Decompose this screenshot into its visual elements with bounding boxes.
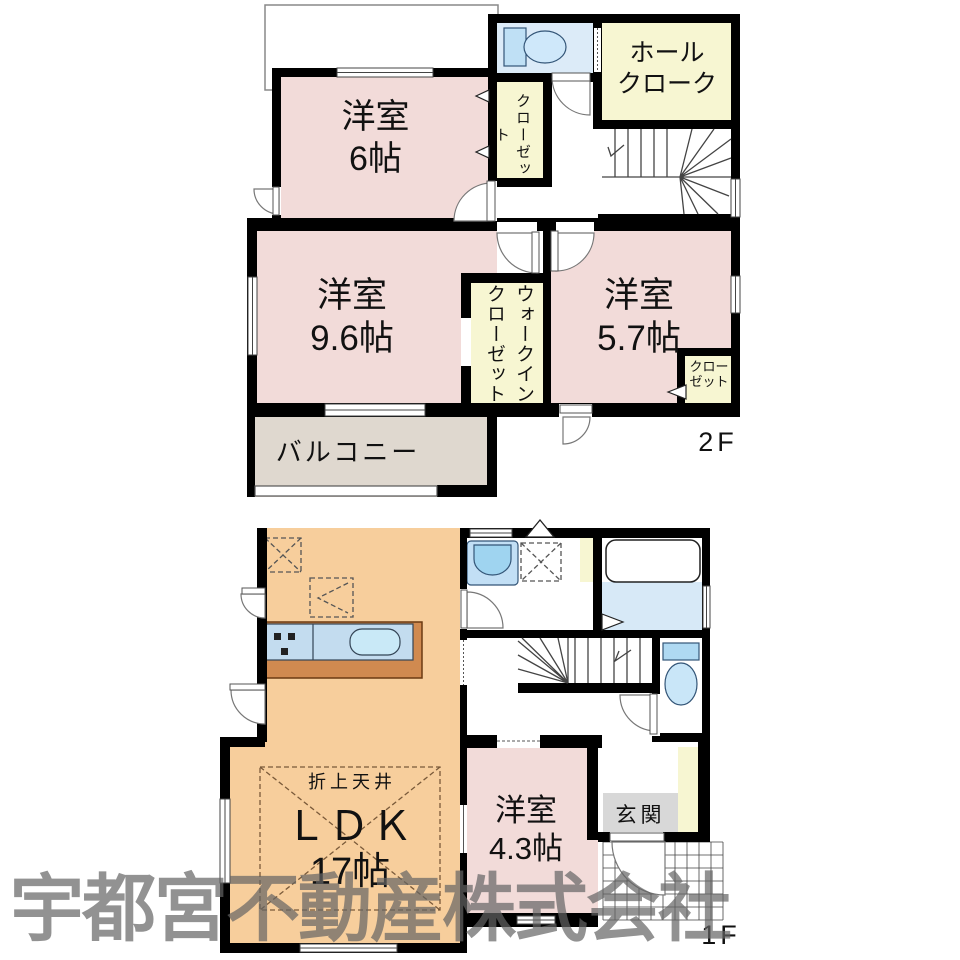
room-size: 9.6帖 (252, 317, 452, 360)
room-label-west57: 洋室 5.7帖 (548, 274, 730, 360)
toilet-icon (663, 643, 699, 660)
ceiling-note-label: 折上天井 (282, 768, 422, 794)
room-name: ＬＤＫ (257, 803, 443, 850)
room-name: 洋室 (252, 274, 452, 317)
floorplan: 洋室 6帖 クローゼット ホール クローク 洋室 9.6帖 ウォークイン クロー… (0, 0, 960, 960)
bathtub-icon (606, 540, 700, 582)
washer-space-icon (521, 543, 561, 581)
kitchen-sink-icon (350, 629, 400, 655)
room-label-west43: 洋室 4.3帖 (462, 792, 590, 868)
toilet-icon (504, 28, 526, 66)
hall-cloak-label: ホール クローク (603, 38, 731, 100)
room-name: 洋室 (462, 792, 590, 830)
room-label-west6: 洋室 6帖 (288, 96, 463, 180)
room-name: 洋室 (288, 96, 463, 138)
room-name: 洋室 (548, 274, 730, 317)
toilet-1f (663, 643, 699, 705)
walk-in-closet-label: ウォークイン クローゼット (476, 283, 538, 405)
entrance-label: 玄関 (603, 799, 678, 829)
room-size: 6帖 (288, 138, 463, 180)
room-label-west96: 洋室 9.6帖 (252, 274, 452, 360)
floor-label-2f: 2F (694, 427, 742, 458)
closet-label-2f: クローゼット (511, 87, 533, 183)
balcony-rail (255, 486, 437, 496)
toilet-2f (504, 28, 566, 66)
washbasin-icon (467, 541, 518, 585)
kitchen-counter (265, 622, 422, 678)
balcony-label: バルコニー (260, 432, 436, 469)
company-watermark: 宇都宮不動産株式会社 (10, 872, 730, 946)
room-size: 5.7帖 (548, 317, 730, 360)
room-size: 4.3帖 (462, 830, 590, 868)
closet-label-small: クロー ゼット (687, 359, 731, 389)
